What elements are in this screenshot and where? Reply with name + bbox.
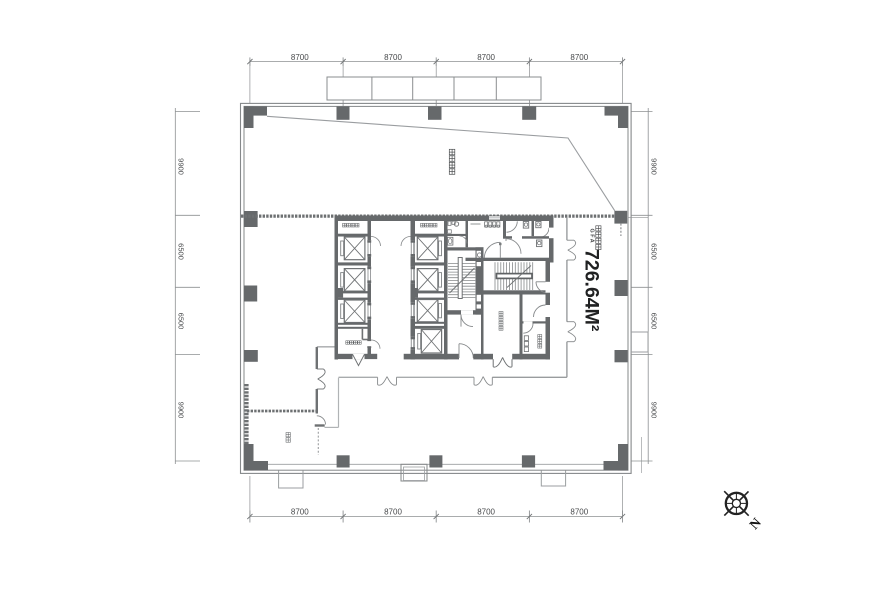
- svg-text:8700: 8700: [384, 53, 402, 62]
- svg-text:8700: 8700: [477, 508, 495, 517]
- svg-text:6500: 6500: [177, 243, 186, 260]
- svg-text:6500: 6500: [649, 243, 658, 260]
- svg-text:9900: 9900: [177, 158, 186, 175]
- svg-text:9900: 9900: [649, 402, 658, 419]
- svg-text:9900: 9900: [649, 158, 658, 175]
- svg-text:726.64M²: 726.64M²: [580, 249, 602, 332]
- svg-text:8700: 8700: [570, 53, 588, 62]
- svg-text:8700: 8700: [291, 53, 309, 62]
- svg-text:8700: 8700: [384, 508, 402, 517]
- svg-text:6500: 6500: [649, 313, 658, 330]
- svg-text:8700: 8700: [291, 508, 309, 517]
- svg-text:6500: 6500: [177, 313, 186, 330]
- svg-text:8700: 8700: [570, 508, 588, 517]
- svg-text:8700: 8700: [477, 53, 495, 62]
- svg-text:9900: 9900: [177, 402, 186, 419]
- svg-text:G F A: G F A: [589, 229, 595, 243]
